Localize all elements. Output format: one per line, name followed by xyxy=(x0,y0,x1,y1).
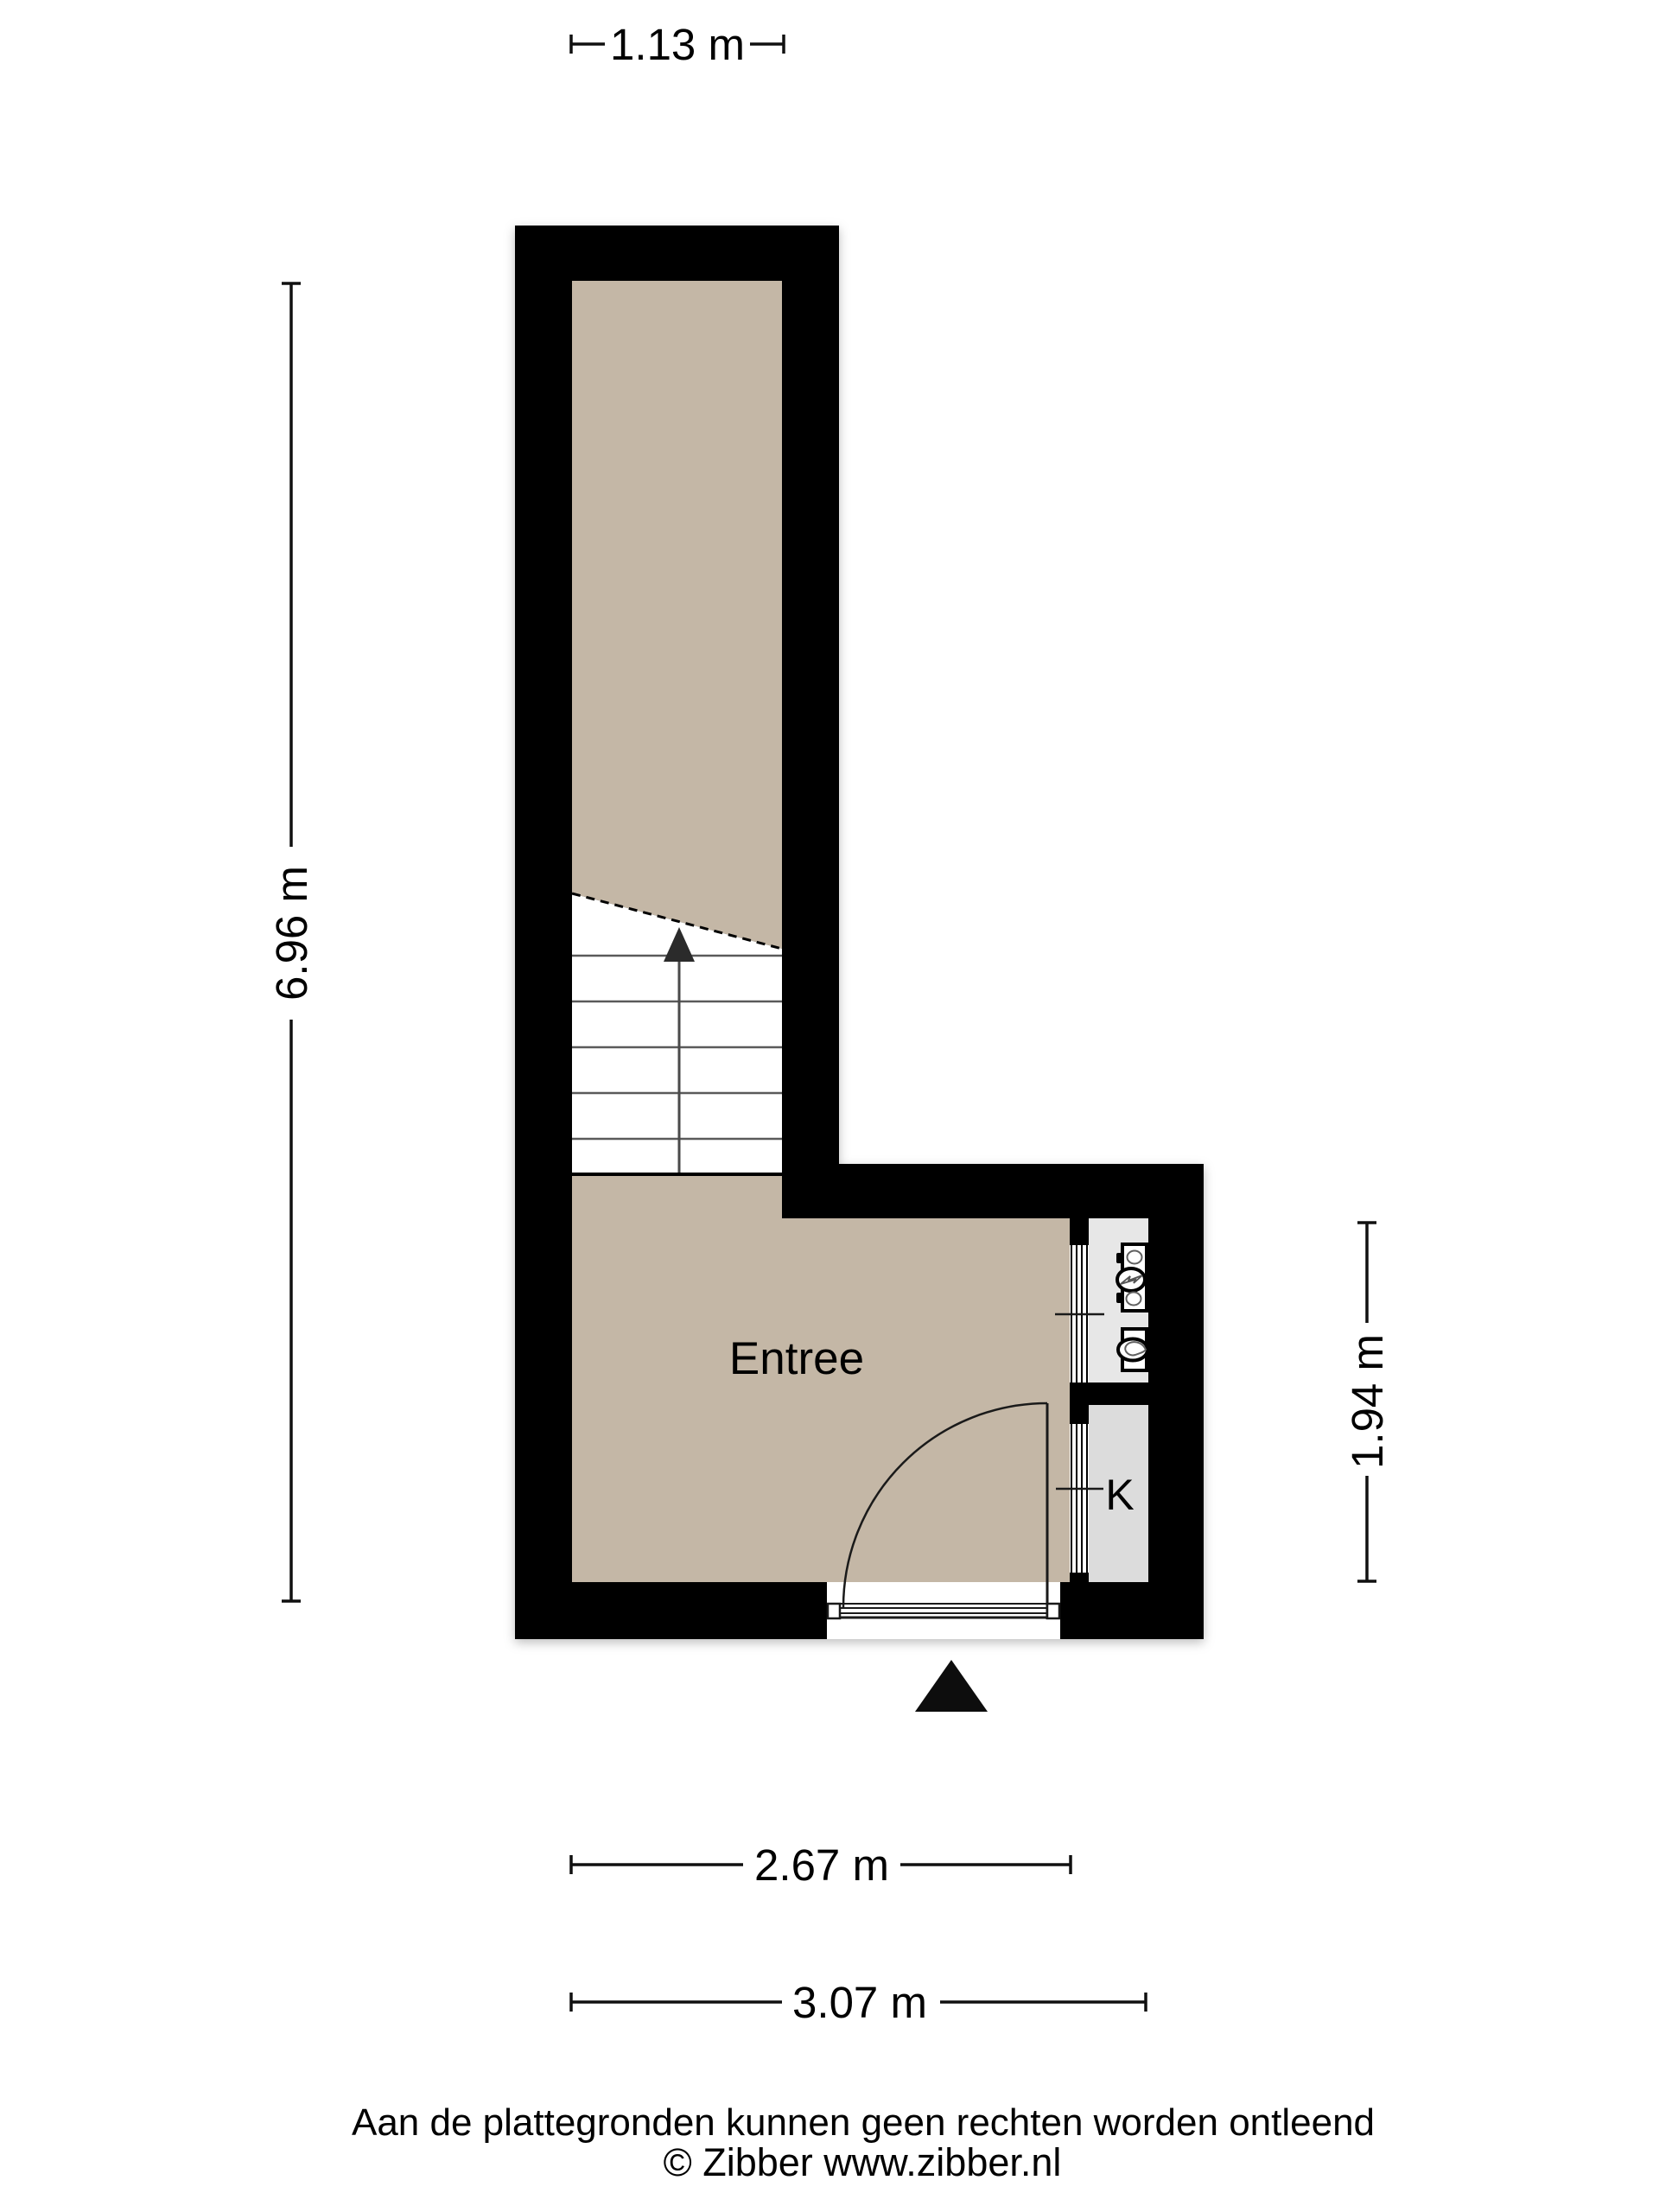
svg-text:3.07 m: 3.07 m xyxy=(792,1978,927,2027)
svg-text:© Zibber www.zibber.nl: © Zibber www.zibber.nl xyxy=(664,2140,1062,2184)
svg-text:2.67 m: 2.67 m xyxy=(754,1840,889,1890)
svg-text:Aan de plattegronden kunnen ge: Aan de plattegronden kunnen geen rechten… xyxy=(352,2101,1375,2144)
svg-text:1.94 m: 1.94 m xyxy=(1343,1334,1392,1469)
svg-text:Entree: Entree xyxy=(729,1333,864,1384)
svg-text:K: K xyxy=(1105,1471,1134,1519)
svg-text:6.96 m: 6.96 m xyxy=(267,866,316,1001)
svg-text:1.13 m: 1.13 m xyxy=(610,20,745,69)
